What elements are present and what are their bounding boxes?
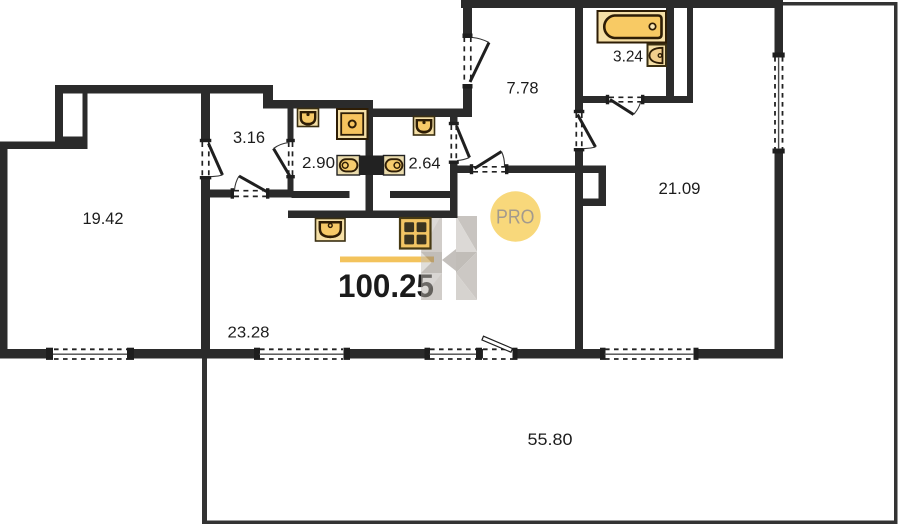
svg-text:7.78: 7.78 [507,79,539,98]
svg-text:21.09: 21.09 [659,179,701,198]
svg-text:3.24: 3.24 [613,49,643,66]
svg-text:PRO: PRO [496,206,535,229]
svg-text:3.16: 3.16 [233,128,265,147]
svg-text:19.42: 19.42 [83,209,124,228]
svg-text:2.64: 2.64 [409,156,441,173]
svg-text:100.25: 100.25 [338,268,434,304]
svg-text:2.90: 2.90 [302,155,335,172]
svg-text:55.80: 55.80 [528,430,573,449]
svg-text:23.28: 23.28 [228,325,270,342]
